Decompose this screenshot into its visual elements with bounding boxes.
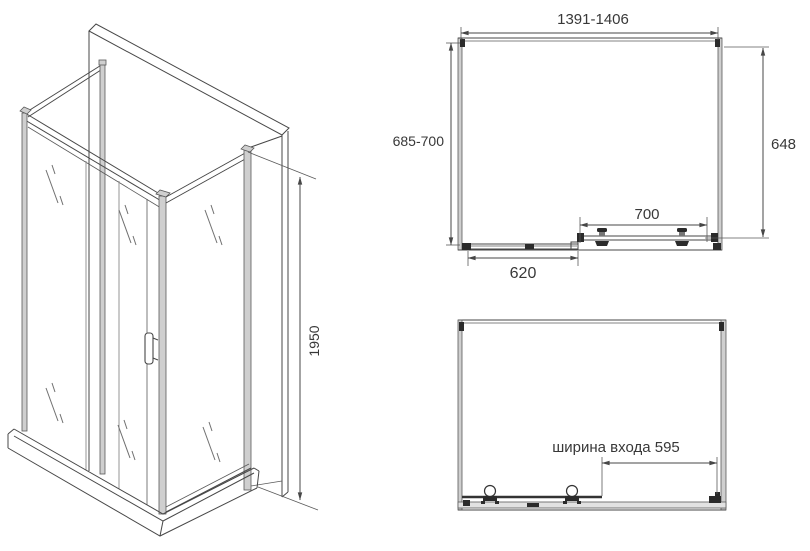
front-left-post [22,113,27,431]
dimension-overall-width: 1391-1406 [461,11,718,40]
center-guide [525,244,534,249]
inner-depth-label: 648 [771,136,796,153]
right-side-wall [166,136,282,512]
left-side-wall [25,60,106,474]
dimension-fixed-panel: 620 [468,251,578,280]
wall-bracket-right [719,322,724,331]
dimension-overall-depth: 685-700 [393,43,460,245]
technical-drawing-canvas: 1950 [0,0,810,551]
entry-width-label: ширина входа 595 [552,439,680,456]
right-back-post [244,150,251,490]
wall-bracket-top-right [715,39,720,47]
top-plan-view: 1391-1406 685-700 648 700 620 [360,0,810,280]
door-panel-label: 700 [634,206,659,223]
fixed-panel-label: 620 [510,265,537,280]
center-guide [527,503,539,507]
glass-reflection-marks [46,165,222,462]
roller-icon [595,228,609,246]
overall-width-label: 1391-1406 [557,11,629,28]
front-frame [458,320,726,510]
dimension-door-panel: 700 [580,206,707,243]
overall-depth-label: 685-700 [393,133,445,149]
door-handle-icon [145,333,158,364]
bracket-left [463,500,470,506]
dimension-height: 1950 [248,152,322,510]
roller-icon [563,486,581,505]
roller-icon [675,228,689,246]
wall-bracket-top-left [460,39,465,47]
front-view: ширина входа 595 [360,280,810,551]
bracket-bottom-left [462,243,471,250]
bracket-bottom-right [713,243,721,250]
shower-tray [8,429,259,536]
wall-bracket-left [459,322,464,331]
plan-sliding-door-track [577,228,721,250]
front-face [20,107,170,514]
height-dimension-label: 1950 [306,325,322,356]
front-right-post [159,196,166,514]
bracket-right [709,496,721,503]
plan-frame [458,38,722,250]
roller-icon [481,486,499,505]
isometric-view: 1950 [0,0,360,551]
